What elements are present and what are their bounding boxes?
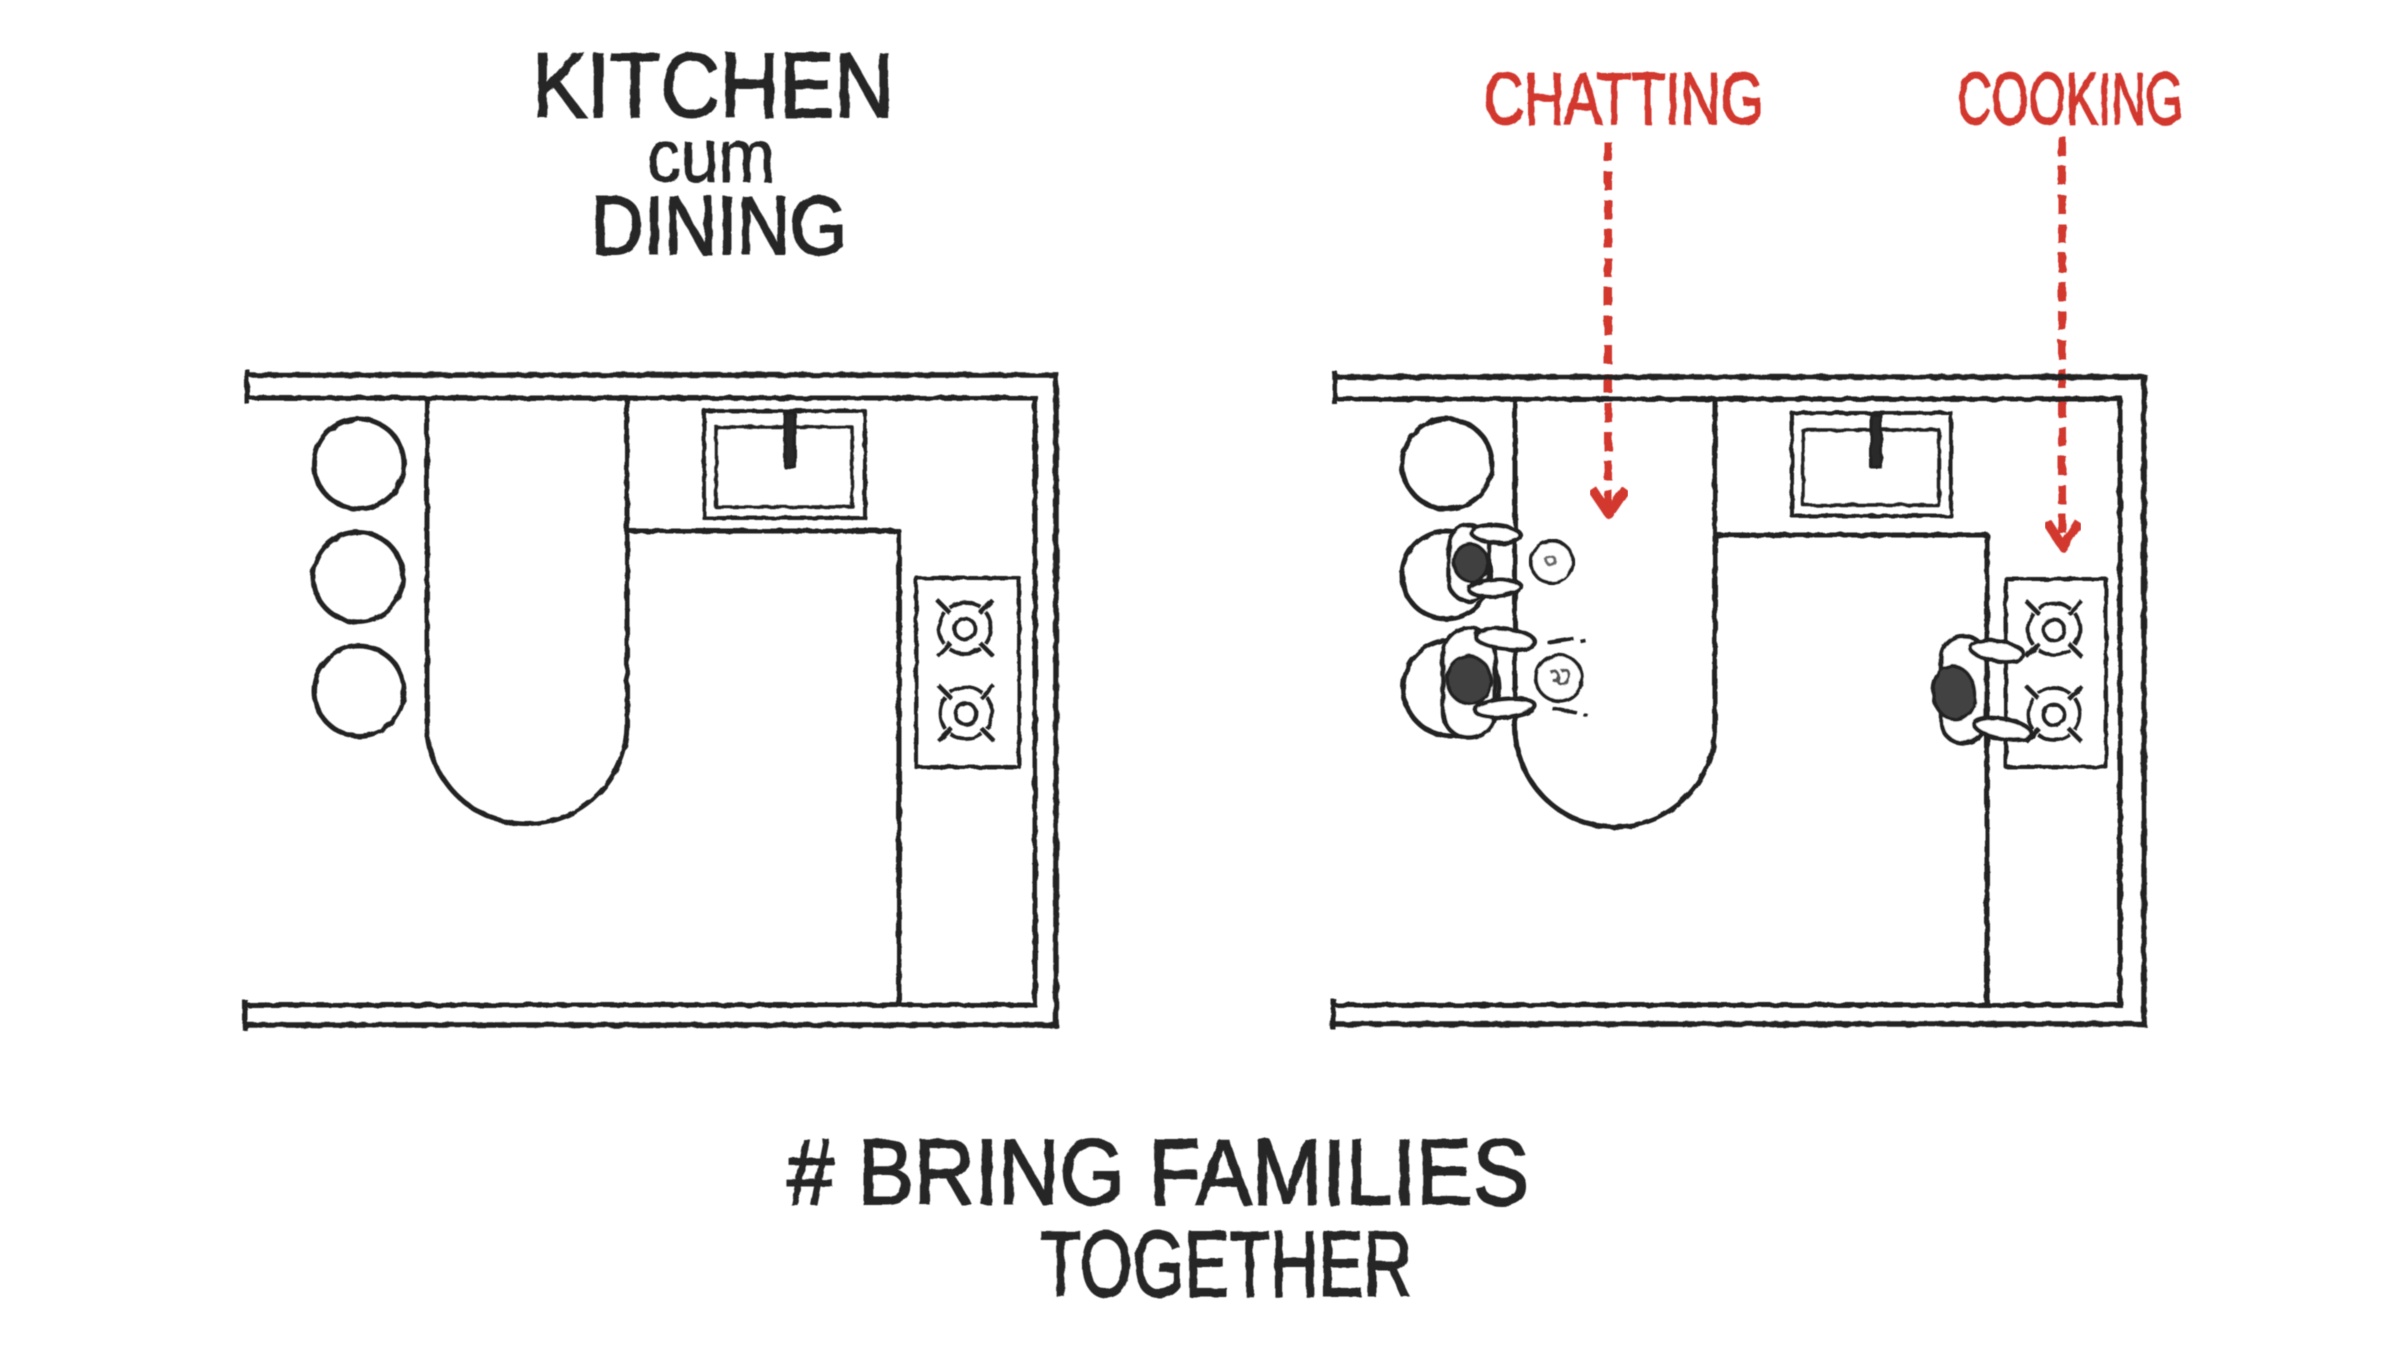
svg-text:CHATTING: CHATTING [1484, 59, 1764, 140]
svg-text:DINING: DINING [591, 179, 847, 272]
svg-text:TOGETHER: TOGETHER [1040, 1212, 1412, 1316]
svg-text:COOKING: COOKING [1957, 59, 2183, 140]
svg-text:# BRING FAMILIES: # BRING FAMILIES [787, 1120, 1529, 1224]
